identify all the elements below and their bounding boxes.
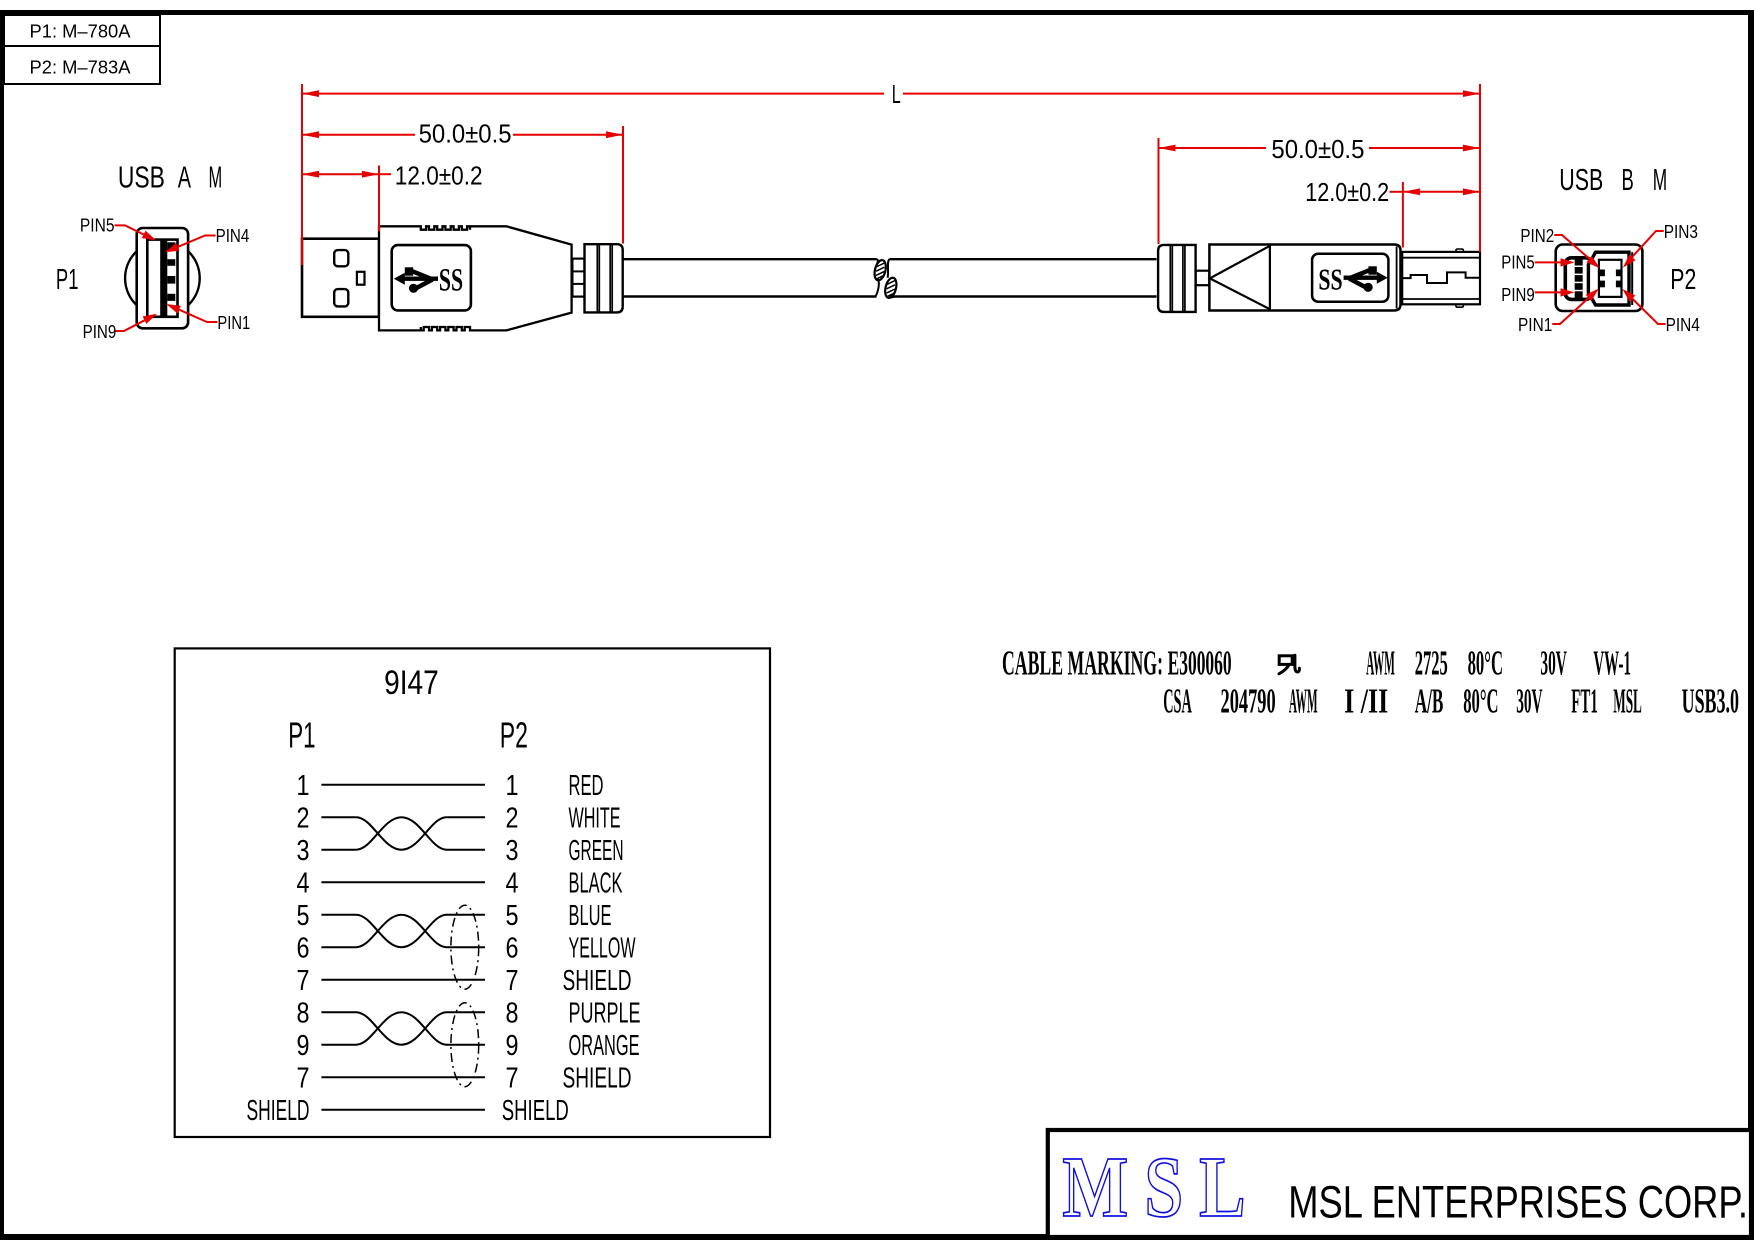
svg-text:USB: USB	[1559, 162, 1603, 197]
svg-text:7: 7	[297, 965, 310, 997]
svg-text:7: 7	[506, 1063, 519, 1095]
svg-text:BLACK: BLACK	[569, 868, 623, 900]
svg-text:PIN1: PIN1	[1518, 314, 1552, 335]
svg-text:6: 6	[297, 933, 310, 965]
svg-text:30V: 30V	[1540, 643, 1567, 682]
svg-text:PIN5: PIN5	[1501, 252, 1534, 273]
svg-text:1: 1	[506, 770, 519, 802]
svg-text:M: M	[1653, 162, 1667, 197]
svg-text:SS: SS	[439, 263, 463, 299]
svg-text:P2: P2	[500, 715, 528, 756]
svg-text:3: 3	[506, 835, 519, 867]
svg-text:4: 4	[297, 868, 310, 900]
svg-text:M: M	[209, 160, 223, 195]
svg-text:9: 9	[506, 1030, 519, 1062]
svg-text:MSL: MSL	[1613, 681, 1642, 720]
svg-text:B: B	[1622, 162, 1634, 197]
svg-text:PIN3: PIN3	[1664, 221, 1698, 242]
svg-text:12.0±0.2: 12.0±0.2	[395, 161, 483, 191]
svg-text:P2: M–783A: P2: M–783A	[30, 57, 132, 78]
svg-text:I /II: I /II	[1344, 681, 1388, 720]
svg-text:PIN4: PIN4	[216, 225, 250, 246]
svg-text:MSL ENTERPRISES CORP.: MSL ENTERPRISES CORP.	[1288, 1177, 1748, 1228]
svg-text:PIN4: PIN4	[1666, 314, 1700, 335]
svg-text:4: 4	[506, 868, 519, 900]
svg-text:PIN9: PIN9	[83, 321, 117, 342]
svg-text:2725: 2725	[1415, 643, 1448, 682]
svg-text:A/B: A/B	[1415, 681, 1444, 720]
svg-text:PIN9: PIN9	[1501, 284, 1534, 305]
svg-text:SHIELD: SHIELD	[502, 1095, 569, 1127]
svg-text:E300060: E300060	[1168, 643, 1232, 682]
svg-text:8: 8	[506, 998, 519, 1030]
svg-text:P1: P1	[56, 264, 79, 296]
svg-text:YELLOW: YELLOW	[569, 933, 636, 965]
svg-text:8: 8	[297, 998, 310, 1030]
svg-text:80°C: 80°C	[1463, 681, 1498, 720]
svg-text:ORANGE: ORANGE	[569, 1030, 640, 1062]
svg-text:5: 5	[297, 900, 310, 932]
svg-text:VW-1: VW-1	[1593, 643, 1631, 682]
svg-text:PIN1: PIN1	[217, 312, 250, 333]
svg-text:P1: P1	[288, 715, 315, 756]
svg-text:9: 9	[297, 1030, 310, 1062]
svg-text:P2: P2	[1670, 264, 1696, 296]
svg-text:GREEN: GREEN	[569, 835, 624, 867]
svg-text:2: 2	[297, 803, 310, 835]
svg-text:PURPLE: PURPLE	[569, 998, 641, 1030]
svg-text:7: 7	[297, 1063, 310, 1095]
svg-text:USB3.0: USB3.0	[1682, 681, 1739, 720]
svg-text:12.0±0.2: 12.0±0.2	[1305, 177, 1389, 207]
svg-text:SS: SS	[1318, 262, 1342, 297]
svg-text:AWM: AWM	[1289, 681, 1318, 720]
svg-text:50.0±0.5: 50.0±0.5	[419, 119, 512, 149]
svg-text:6: 6	[506, 933, 519, 965]
svg-text:3: 3	[297, 835, 310, 867]
svg-text:A: A	[178, 160, 192, 195]
svg-text:USB: USB	[118, 160, 165, 195]
svg-text:7: 7	[506, 965, 519, 997]
svg-text:204790: 204790	[1221, 681, 1276, 720]
svg-text:9I47: 9I47	[384, 664, 439, 702]
svg-text:1: 1	[297, 770, 310, 802]
svg-text:FT1: FT1	[1571, 681, 1598, 720]
svg-text:CABLE MARKING:: CABLE MARKING:	[1002, 643, 1163, 682]
svg-text:MSL: MSL	[1062, 1138, 1261, 1235]
svg-text:50.0±0.5: 50.0±0.5	[1271, 134, 1364, 164]
svg-text:30V: 30V	[1516, 681, 1542, 720]
svg-text:BLUE: BLUE	[569, 900, 612, 932]
svg-text:AWM: AWM	[1366, 643, 1395, 682]
svg-text:RED: RED	[569, 770, 604, 802]
svg-text:5: 5	[506, 900, 519, 932]
svg-text:80°C: 80°C	[1468, 643, 1503, 682]
svg-text:P1: M–780A: P1: M–780A	[30, 21, 132, 42]
svg-text:PIN2: PIN2	[1520, 225, 1554, 246]
svg-text:2: 2	[506, 803, 519, 835]
svg-text:L: L	[892, 79, 901, 109]
svg-text:SHIELD: SHIELD	[563, 1063, 632, 1095]
svg-text:SHIELD: SHIELD	[563, 965, 632, 997]
svg-text:CSA: CSA	[1163, 681, 1192, 720]
svg-text:WHITE: WHITE	[569, 803, 621, 835]
svg-text:PIN5: PIN5	[80, 215, 115, 236]
svg-text:SHIELD: SHIELD	[247, 1095, 310, 1127]
